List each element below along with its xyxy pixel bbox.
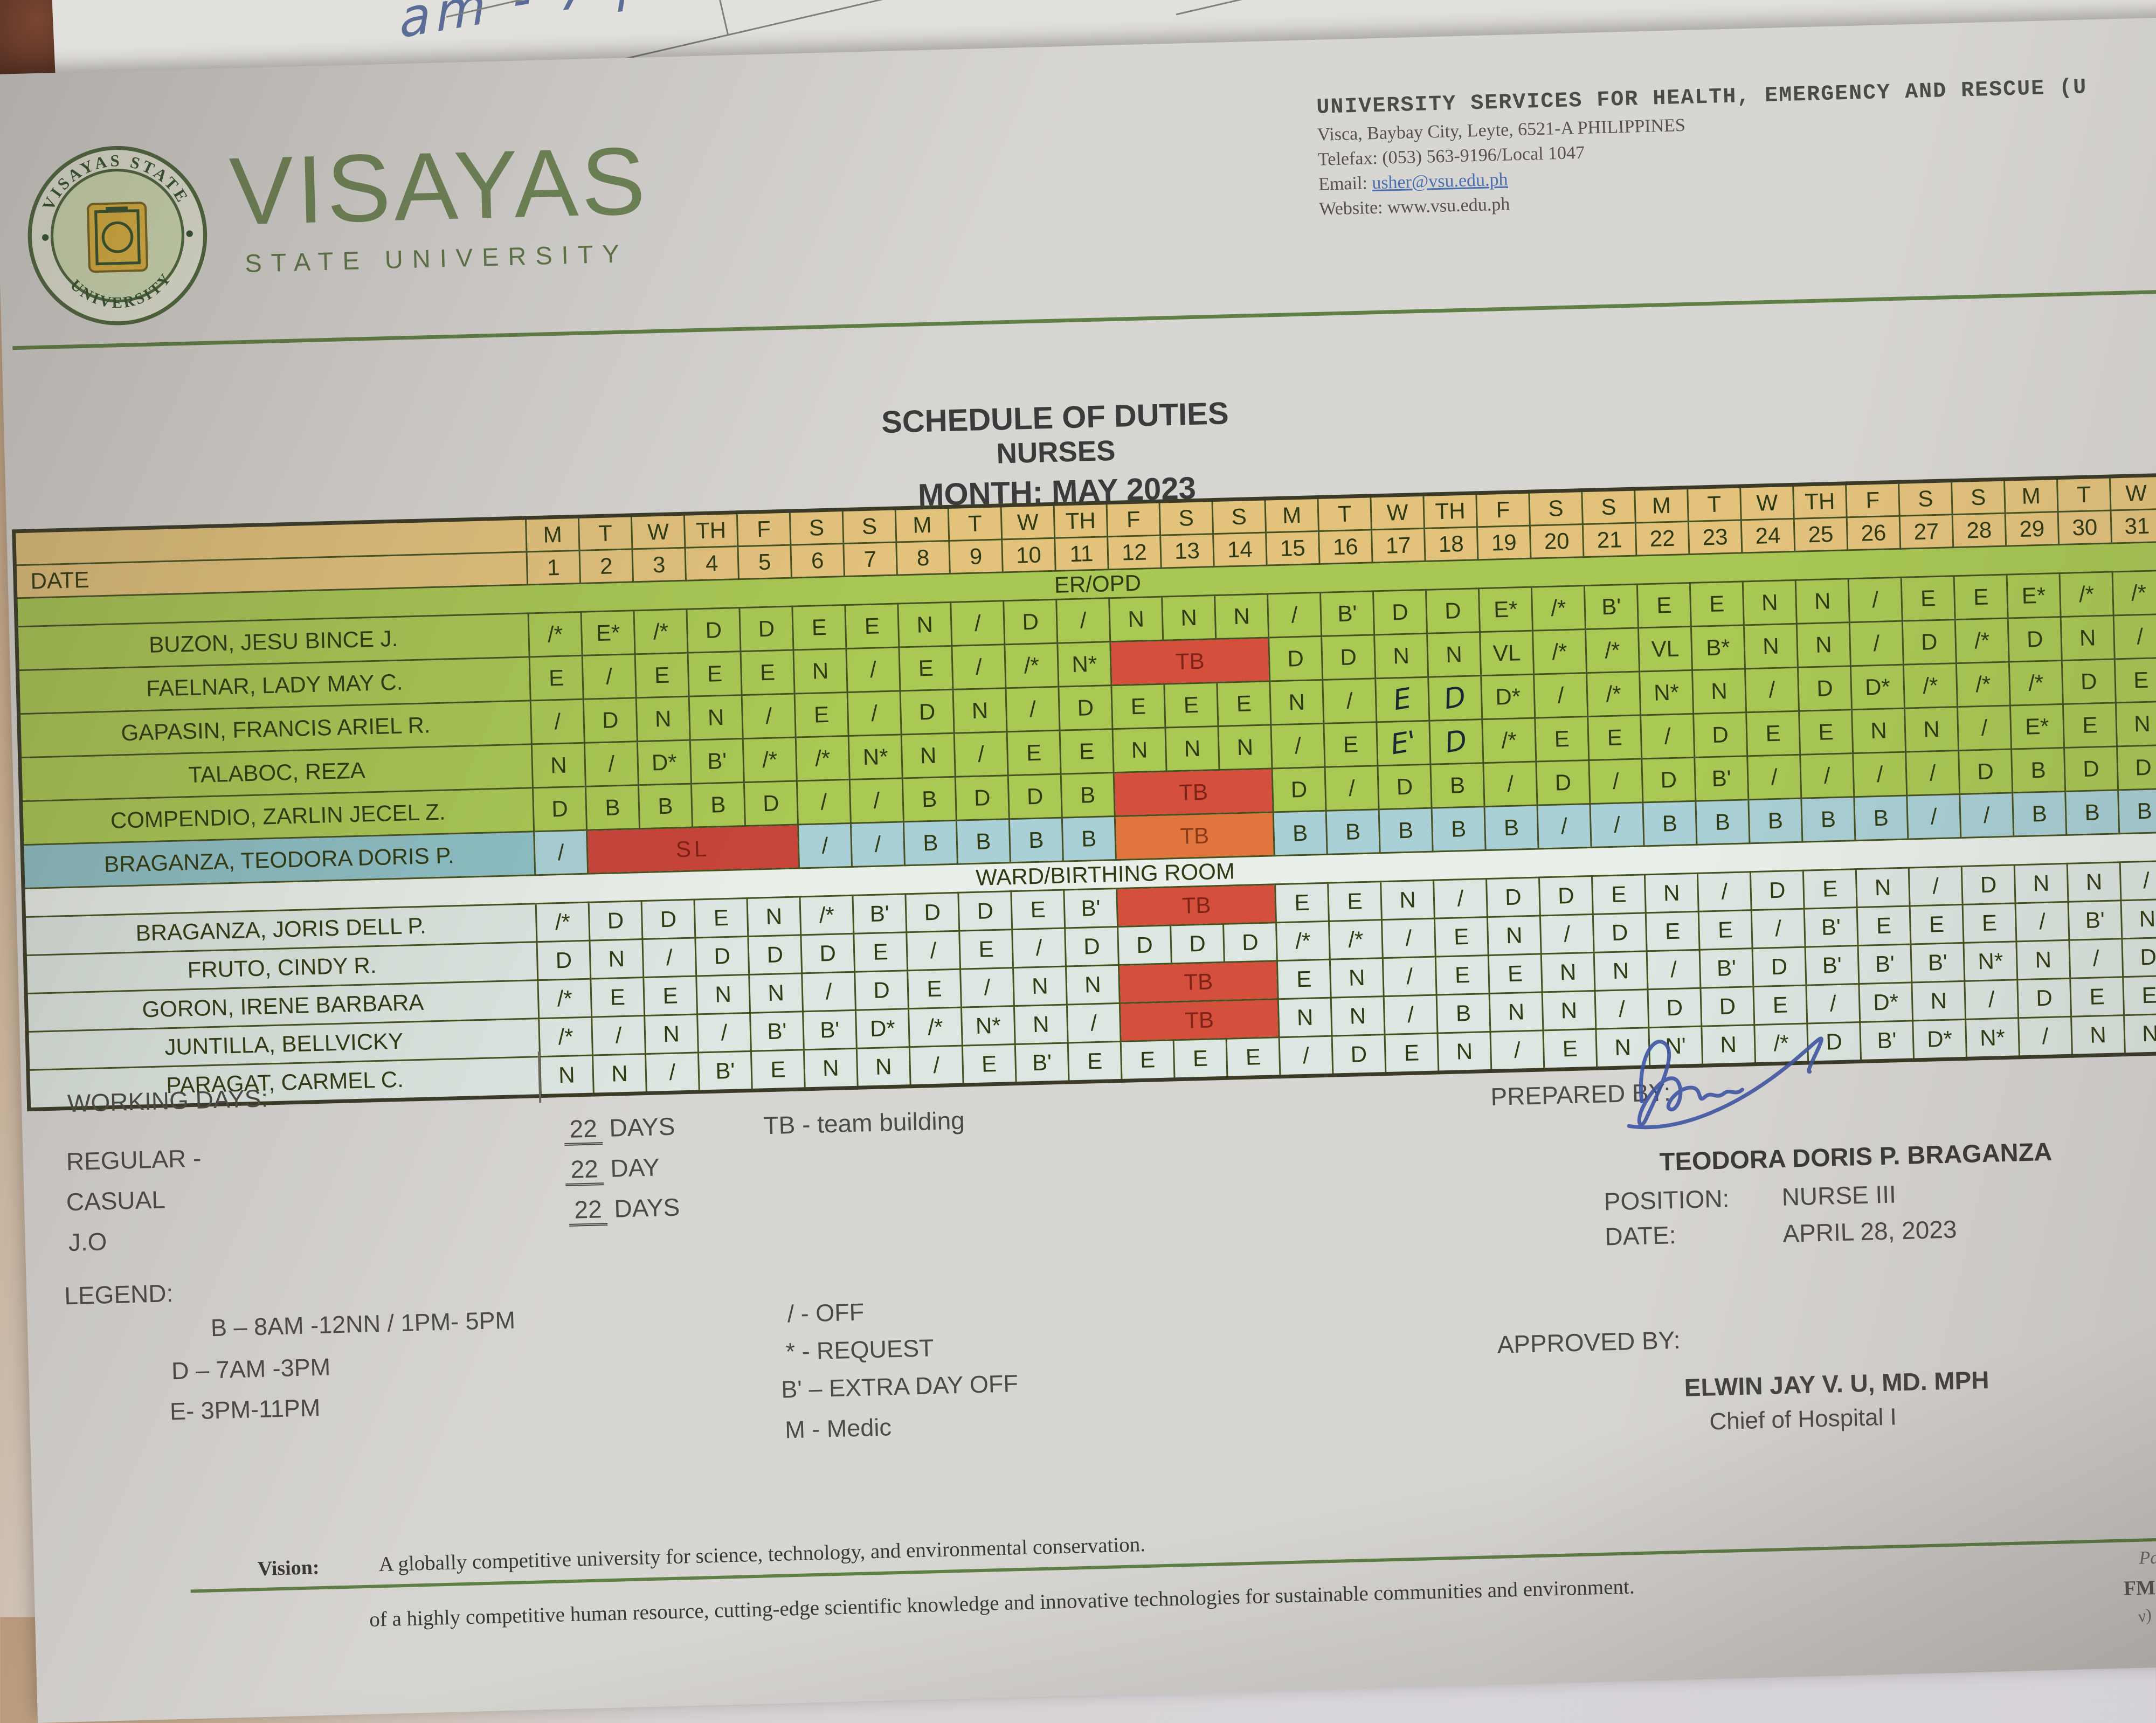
duty-cell: E	[2063, 703, 2117, 748]
duty-cell: N	[1743, 580, 1796, 625]
duty-cell: /	[849, 778, 903, 824]
duty-cell: N	[747, 897, 801, 937]
day-header: T	[2057, 476, 2111, 512]
duty-cell: /	[642, 938, 696, 978]
duty-cell: N	[2014, 863, 2068, 903]
duty-cell: N	[1856, 868, 1910, 908]
duty-cell: E	[1007, 730, 1061, 776]
duty-cell: /	[1540, 914, 1594, 954]
university-seal-icon: VISAYAS STATE UNIVERSITY	[20, 139, 214, 333]
duty-cell: D	[537, 940, 591, 980]
email-link: usher@vsu.edu.ph	[1372, 169, 1508, 193]
duty-cell-handwritten: E'	[1377, 721, 1431, 766]
duty-cell: E	[1068, 1041, 1122, 1082]
duty-cell: /*	[908, 1007, 962, 1047]
grid-line	[1176, 0, 1597, 15]
duty-cell: B	[1801, 797, 1855, 842]
working-days-jo-label: J.O	[68, 1227, 107, 1257]
date-header: 25	[1794, 517, 1848, 552]
duty-cell: /	[851, 822, 904, 867]
duty-cell: /	[2019, 1016, 2072, 1057]
duty-cell: B	[585, 785, 639, 831]
duty-cell: /*	[634, 609, 688, 654]
day-header: F	[737, 511, 791, 546]
duty-cell: B'	[2068, 901, 2122, 940]
duty-cell: N	[1427, 632, 1481, 677]
duty-cell: E	[2114, 658, 2156, 703]
legend-label: LEGEND:	[64, 1278, 174, 1310]
duty-cell: N	[531, 743, 585, 788]
duty-cell: N	[1541, 952, 1595, 992]
day-header: W	[631, 514, 685, 549]
day-header: S	[1582, 489, 1636, 524]
duty-cell: D*	[1859, 982, 1913, 1022]
duty-cell: D	[900, 689, 954, 735]
working-days-casual-label: CASUAL	[66, 1185, 165, 1216]
duty-cell: D	[1378, 764, 1432, 809]
duty-cell: /*	[536, 902, 590, 942]
duty-cell: E	[1901, 576, 1955, 621]
website-text: www.vsu.edu.ph	[1387, 194, 1510, 217]
duty-cell: D	[2122, 937, 2156, 977]
legend-item-off: / - OFF	[787, 1298, 865, 1328]
duty-cell: E	[792, 605, 846, 651]
duty-cell: /*	[538, 979, 592, 1019]
duty-cell: E	[1910, 904, 1964, 944]
duty-cell: N	[1438, 1032, 1491, 1072]
duty-cell: N	[645, 1014, 699, 1054]
duty-cell: /	[1589, 759, 1643, 804]
duty-cell: /	[1906, 751, 1960, 796]
duty-cell: N	[1852, 708, 1906, 753]
legend-item-d: D – 7AM -3PM	[171, 1353, 330, 1386]
duty-cell: N	[636, 696, 690, 742]
duty-cell: D	[695, 936, 749, 976]
duty-cell: /*	[2060, 572, 2113, 617]
duty-cell: E	[1275, 883, 1329, 923]
duty-cell: /	[530, 699, 584, 744]
duty-cell: /	[954, 732, 1008, 777]
date-header: 4	[685, 546, 739, 581]
duty-cell: E	[741, 650, 794, 695]
tb-cell: TB	[1110, 638, 1270, 686]
duty-cell: N	[2061, 615, 2114, 661]
duty-cell: N	[1487, 916, 1541, 956]
duty-cell: N	[1796, 622, 1850, 668]
duty-cell: E	[1690, 582, 1744, 627]
duty-cell: N	[1013, 966, 1067, 1006]
duty-cell: E	[688, 652, 742, 697]
duty-cell: /*	[796, 736, 849, 781]
duty-cell: E	[1803, 869, 1857, 909]
day-header: S	[790, 510, 844, 545]
day-header: W	[1371, 494, 1425, 530]
duty-cell: B	[1062, 816, 1116, 862]
date-header: 7	[844, 542, 897, 577]
day-header: M	[895, 507, 949, 542]
duty-cell: B'	[1321, 591, 1374, 636]
duty-cell: D	[958, 891, 1012, 931]
duty-cell: E	[1535, 717, 1589, 762]
day-header: T	[578, 515, 632, 551]
duty-cell: D*	[1913, 1019, 1967, 1060]
day-header: S	[1529, 490, 1583, 526]
date-header: 21	[1583, 523, 1636, 557]
duty-cell: B'	[698, 1051, 752, 1092]
legend-item-b: B – 8AM -12NN / 1PM- 5PM	[210, 1306, 515, 1343]
duty-cell: E	[1588, 715, 1642, 760]
duty-cell: E	[1173, 1039, 1227, 1080]
day-header: M	[1265, 497, 1319, 533]
duty-cell: N	[1162, 596, 1216, 641]
duty-cell: N	[1109, 597, 1163, 642]
duty-cell: E	[635, 653, 689, 698]
duty-cell: D	[1171, 924, 1225, 964]
duty-cell: D	[740, 606, 793, 652]
duty-cell: /	[1434, 879, 1488, 919]
duty-cell: D	[1694, 712, 1747, 758]
duty-cell: E*	[1478, 587, 1532, 632]
duty-cell: /	[2015, 902, 2069, 942]
duty-cell: E	[1011, 890, 1065, 930]
duty-cell-handwritten: E	[1376, 677, 1429, 722]
duty-cell: /	[2120, 861, 2156, 901]
day-header: M	[526, 516, 579, 552]
duty-cell: /*	[800, 895, 854, 935]
duty-cell: N	[2067, 862, 2121, 902]
duty-cell: /*	[1329, 920, 1383, 960]
duty-cell: E	[1962, 903, 2016, 943]
date-header: 27	[1899, 515, 1953, 549]
date-header: 12	[1108, 535, 1162, 570]
duty-cell: N	[1594, 951, 1648, 991]
sl-cell: SL	[587, 825, 799, 874]
duty-cell: /*	[1585, 628, 1639, 673]
legend-item-request: * - REQUEST	[785, 1334, 934, 1366]
duty-cell: D	[748, 935, 802, 975]
duty-cell: /	[1965, 980, 2019, 1020]
duty-cell: /	[909, 1046, 963, 1087]
duty-cell: D	[1008, 774, 1062, 819]
duty-cell: /	[1641, 714, 1695, 759]
duty-cell: /	[1056, 598, 1110, 643]
duty-cell: E*	[581, 611, 635, 656]
duty-cell: B	[1854, 795, 1908, 841]
duty-cell: D	[855, 971, 909, 1011]
duty-cell: N	[1270, 680, 1324, 725]
duty-cell: N	[1692, 669, 1746, 714]
duty-cell: B'	[1805, 946, 1859, 986]
duty-cell: /	[534, 830, 588, 875]
duty-cell: N	[696, 974, 750, 1014]
duty-cell: /	[1534, 673, 1588, 718]
duty-cell: N	[1112, 728, 1166, 773]
day-header: TH	[1423, 493, 1477, 529]
tb-cell: TB	[1120, 999, 1279, 1042]
duty-cell: E	[1698, 910, 1752, 950]
duty-cell: N	[1795, 579, 1849, 624]
tb-note: TB - team building	[763, 1106, 965, 1140]
duty-cell: /*	[1005, 643, 1059, 688]
duty-cell: D	[1004, 599, 1058, 645]
duty-cell: /	[1067, 1003, 1121, 1043]
duty-cell: /	[1384, 995, 1438, 1035]
date-header: 17	[1371, 528, 1425, 563]
date-header: 16	[1319, 530, 1373, 564]
duty-cell: N	[1905, 707, 1959, 752]
day-header: TH	[684, 513, 738, 548]
date-header: 20	[1530, 524, 1584, 559]
duty-cell: /	[1323, 679, 1377, 724]
tb-cell: TB	[1117, 884, 1276, 927]
duty-cell: D	[1118, 925, 1172, 965]
duty-cell: N*	[1966, 1018, 2020, 1059]
duty-cell: N	[1912, 981, 1966, 1021]
duty-cell: D	[1224, 923, 1277, 963]
duty-cell: B	[1643, 801, 1697, 846]
date-header: 22	[1635, 522, 1689, 556]
duty-cell: D	[589, 901, 642, 941]
duty-cell: /*	[1903, 663, 1957, 709]
position-label: POSITION:	[1604, 1184, 1730, 1216]
duty-cell: E	[591, 978, 645, 1018]
duty-cell: N	[901, 733, 955, 778]
day-header: TH	[1054, 503, 1108, 538]
day-header: S	[1212, 499, 1266, 534]
duty-cell: /	[802, 972, 856, 1012]
day-header: S	[1159, 500, 1213, 536]
duty-cell: E	[751, 1050, 805, 1091]
duty-cell: D*	[855, 1009, 909, 1049]
duty-cell: N	[2116, 701, 2156, 746]
date-header: 9	[949, 539, 1003, 574]
duty-cell: B	[1273, 811, 1327, 856]
duty-cell: VL	[1480, 631, 1534, 676]
duty-cell: N	[1644, 873, 1698, 913]
duty-cell: B	[902, 777, 956, 822]
duty-cell: D	[1373, 590, 1427, 635]
duty-cell: /	[1383, 957, 1436, 997]
duty-cell: B	[2118, 788, 2156, 834]
position-value: NURSE III	[1781, 1179, 1896, 1212]
duty-cell: E	[1385, 1033, 1439, 1074]
day-header: W	[1740, 485, 1794, 520]
duty-cell: /	[951, 601, 1005, 646]
duty-cell: B	[638, 784, 692, 829]
duty-cell: /	[1537, 804, 1591, 849]
approved-by-name: ELWIN JAY V. U, MD. MPH	[1684, 1365, 1989, 1402]
duty-cell: N	[749, 973, 803, 1013]
duty-cell: N	[1374, 633, 1428, 679]
duty-cell: /	[742, 694, 796, 739]
vision-text-2: of a highly competitive human resource, …	[369, 1561, 2148, 1631]
duty-cell: /	[1745, 667, 1799, 712]
duty-cell: D	[801, 933, 855, 973]
duty-cell: D	[1642, 757, 1696, 802]
duty-cell: B	[1061, 773, 1115, 818]
date-header: 31	[2111, 509, 2156, 543]
tb-cell: TB	[1115, 812, 1274, 860]
duty-cell: /	[798, 823, 852, 868]
duty-cell: B	[903, 820, 957, 866]
duty-cell: N	[898, 602, 952, 647]
day-header: S	[1951, 479, 2005, 515]
date-header: 6	[791, 544, 845, 578]
duty-cell: /	[1848, 577, 1902, 622]
duty-cell: E	[899, 646, 953, 691]
duty-cell: E*	[2010, 704, 2064, 749]
day-header: M	[1635, 488, 1689, 523]
duty-cell: /	[1268, 592, 1322, 638]
duty-cell: B'	[1858, 944, 1912, 984]
duty-cell: /	[907, 931, 960, 971]
duty-cell: N	[1381, 880, 1435, 920]
duty-cell: /	[1909, 866, 1962, 906]
duty-cell: D	[1961, 865, 2015, 905]
duty-cell: B'	[1695, 756, 1749, 801]
duty-cell: E	[1646, 911, 1699, 951]
duty-cell: N*	[1964, 942, 2017, 981]
duty-cell: D	[744, 781, 798, 826]
duty-cell: B	[2065, 790, 2119, 835]
duty-cell: B'	[750, 1012, 804, 1051]
date-header: 28	[1952, 513, 2006, 548]
duty-cell: D	[906, 892, 959, 932]
duty-cell: B'	[853, 894, 907, 934]
duty-cell: N	[590, 939, 644, 979]
duty-cell: /	[847, 691, 901, 736]
duty-cell: D	[1426, 589, 1480, 634]
university-wordmark-sub: STATE UNIVERSITY	[245, 238, 629, 278]
duty-cell: N	[804, 1048, 858, 1089]
letterhead-block: UNIVERSITY SERVICES FOR HEALTH, EMERGENC…	[1316, 70, 2156, 222]
day-header: S	[1899, 481, 1953, 516]
date-header: 30	[2058, 510, 2112, 545]
duty-cell: E	[2123, 975, 2156, 1015]
duty-cell: /	[846, 647, 900, 693]
duty-cell: N*	[961, 1006, 1015, 1046]
duty-cell: /	[1747, 755, 1801, 800]
duty-cell: D*	[1850, 665, 1904, 710]
date-header: 29	[2005, 512, 2059, 546]
date-header: 26	[1847, 516, 1901, 550]
duty-cell: B*	[1691, 625, 1745, 670]
duty-cell: E	[1799, 710, 1853, 755]
duty-cell: /	[1490, 1030, 1544, 1071]
duty-cell: E	[854, 932, 908, 972]
date-header: 13	[1160, 534, 1214, 569]
duty-cell: /	[582, 654, 636, 700]
duty-cell: B	[1432, 807, 1485, 852]
date-header: 5	[738, 545, 792, 579]
duty-cell: /*	[528, 612, 582, 657]
duty-cell: N	[953, 688, 1007, 734]
day-header: M	[2004, 478, 2058, 514]
duty-cell: /	[1907, 794, 1961, 840]
day-header: F	[1476, 492, 1530, 527]
day-header: F	[1107, 501, 1160, 537]
duty-cell: B	[956, 819, 1010, 864]
date-label: DATE:	[1605, 1220, 1676, 1251]
duty-cell: E*	[2007, 573, 2061, 619]
duty-cell: D	[583, 698, 637, 743]
duty-cell-handwritten: D	[1428, 676, 1482, 721]
working-days-regular-value: 22 DAYS	[564, 1112, 675, 1144]
duty-cell: E	[959, 930, 1013, 970]
header-rule	[12, 288, 2156, 350]
duty-cell: D	[1539, 876, 1593, 916]
schedule-paper: VISAYAS STATE UNIVERSITY VISAYAS STATE U…	[0, 16, 2156, 1723]
duty-cell: D	[1750, 870, 1804, 910]
duty-cell: E	[1857, 906, 1911, 946]
duty-cell: B'	[1699, 949, 1753, 988]
day-header: T	[1688, 486, 1742, 522]
duty-cell: E	[794, 692, 848, 737]
signature-icon	[1572, 1017, 1877, 1149]
duty-cell: E	[1121, 1040, 1174, 1081]
date-header: 11	[1055, 537, 1109, 571]
day-header: T	[1318, 496, 1372, 531]
date-header: 2	[579, 549, 633, 584]
duty-cell: E	[1277, 959, 1331, 999]
duty-cell: /	[1590, 802, 1644, 848]
duty-cell: D	[687, 608, 741, 653]
day-header: T	[948, 506, 1002, 541]
working-days-label: WORKING DAYS:	[67, 1083, 268, 1118]
duty-cell: E	[1324, 722, 1378, 767]
legend-item-medic: M - Medic	[785, 1413, 892, 1444]
duty-cell: N	[2016, 940, 2070, 980]
duty-cell: B'	[1584, 584, 1638, 629]
duty-cell: /	[1381, 918, 1435, 958]
duty-cell: D*	[1481, 674, 1535, 719]
duty-cell: N	[1489, 992, 1543, 1032]
duty-cell: D*	[637, 740, 691, 785]
vision-label: Vision:	[257, 1555, 320, 1581]
duty-cell: N	[1165, 726, 1219, 771]
duty-cell: B'	[1804, 908, 1858, 947]
duty-cell: E	[1435, 956, 1489, 995]
duty-cell: /	[697, 1013, 751, 1053]
date-header: 19	[1477, 525, 1531, 560]
duty-cell: N*	[848, 735, 902, 780]
duty-cell: B	[1431, 763, 1484, 808]
day-header: W	[1001, 504, 1055, 539]
duty-cell: /*	[743, 737, 797, 783]
duty-cell: N*	[1640, 670, 1694, 715]
duty-cell: B'	[803, 1010, 857, 1050]
duty-cell: /	[952, 645, 1006, 690]
duty-cell: N	[689, 695, 743, 741]
university-wordmark: VISAYAS	[229, 133, 650, 239]
duty-cell: /*	[539, 1017, 593, 1057]
duty-cell: /*	[1531, 586, 1585, 631]
duty-cell: D	[1487, 877, 1540, 917]
duty-cell: D	[641, 899, 695, 939]
duty-cell: /	[960, 968, 1014, 1008]
duty-cell: N	[593, 1054, 647, 1095]
tb-cell: TB	[1118, 961, 1278, 1004]
duty-cell: E	[1434, 917, 1488, 957]
duty-cell: B'	[690, 739, 744, 784]
duty-cell: E	[1592, 875, 1646, 915]
duty-cell: N	[540, 1055, 594, 1096]
duty-cell: /	[1800, 753, 1854, 799]
duty-cell: D	[1065, 926, 1119, 966]
duty-cell: D	[1752, 947, 1806, 987]
date-header: 10	[1002, 538, 1056, 572]
duty-cell: B	[2013, 791, 2067, 836]
